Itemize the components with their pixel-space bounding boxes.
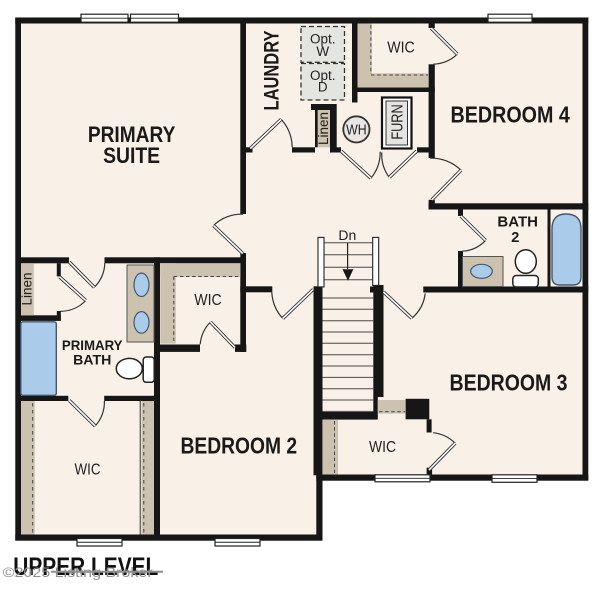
svg-text:WIC: WIC	[194, 292, 222, 309]
svg-text:WIC: WIC	[369, 439, 396, 456]
svg-text:W: W	[316, 44, 329, 59]
svg-text:SUITE: SUITE	[103, 143, 160, 168]
svg-text:Linen: Linen	[316, 112, 331, 145]
svg-text:WH: WH	[346, 122, 367, 139]
svg-text:BEDROOM 3: BEDROOM 3	[450, 370, 568, 396]
svg-text:Linen: Linen	[20, 272, 35, 305]
svg-text:BEDROOM 4: BEDROOM 4	[451, 102, 570, 128]
svg-text:Dn: Dn	[338, 227, 356, 243]
svg-text:WIC: WIC	[387, 40, 415, 57]
svg-text:LAUNDRY: LAUNDRY	[260, 31, 284, 111]
svg-text:BEDROOM 2: BEDROOM 2	[180, 433, 297, 459]
svg-text:BATH: BATH	[73, 351, 111, 367]
svg-text:WIC: WIC	[75, 462, 101, 479]
svg-text:D: D	[318, 80, 328, 95]
svg-text:BATH: BATH	[497, 215, 538, 231]
svg-text:2: 2	[511, 230, 519, 246]
svg-text:FURN: FURN	[390, 104, 407, 139]
